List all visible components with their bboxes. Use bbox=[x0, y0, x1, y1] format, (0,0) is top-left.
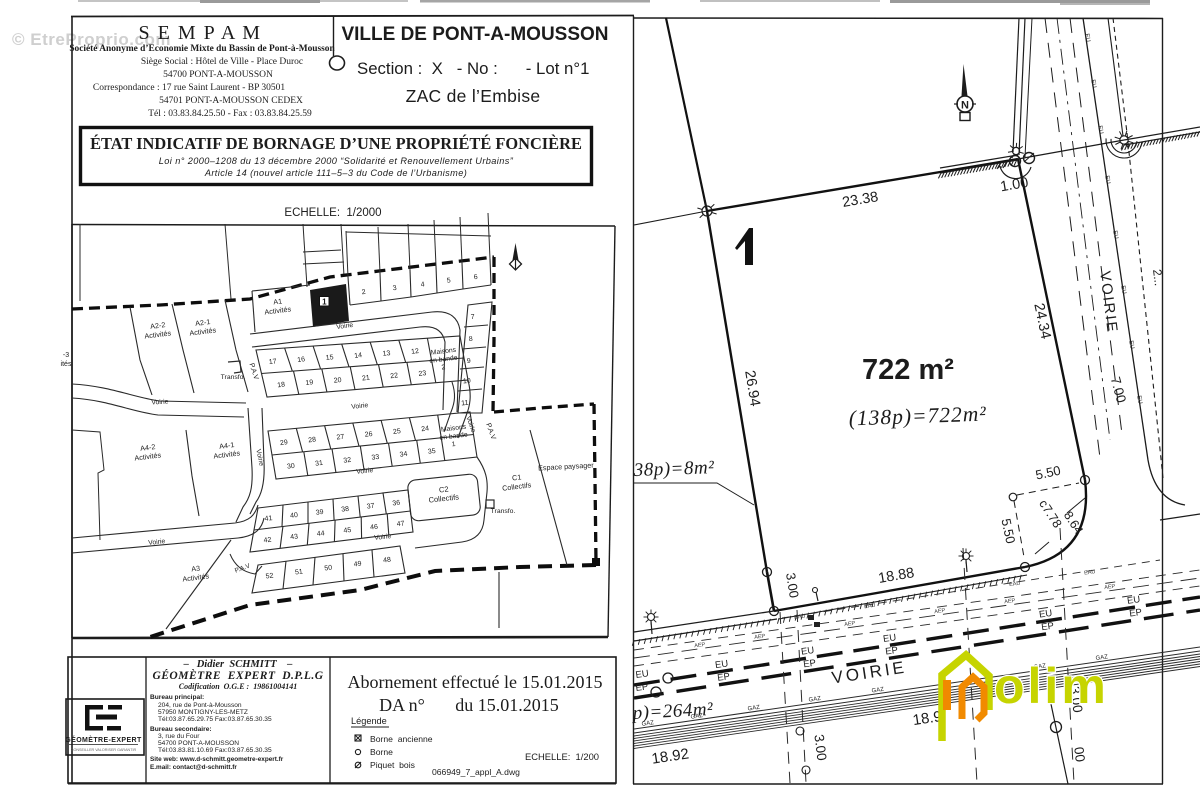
svg-text:31: 31 bbox=[315, 460, 324, 468]
svg-text:Activités: Activités bbox=[144, 328, 172, 340]
svg-text:26.94: 26.94 bbox=[741, 369, 762, 407]
svg-text:9: 9 bbox=[467, 358, 472, 365]
svg-text:EU: EU bbox=[1135, 395, 1142, 404]
svg-text:du 15.01.2015: du 15.01.2015 bbox=[455, 695, 559, 715]
svg-text:EAU: EAU bbox=[1009, 581, 1021, 589]
svg-text:VOIRIE: VOIRIE bbox=[830, 658, 908, 688]
svg-text:EU: EU bbox=[800, 645, 815, 658]
svg-text:46: 46 bbox=[370, 524, 379, 532]
svg-text:ZAC de l’Embise: ZAC de l’Embise bbox=[406, 86, 541, 106]
svg-text:44: 44 bbox=[316, 530, 325, 538]
svg-text:EU: EU bbox=[1111, 230, 1118, 239]
svg-text:Activités: Activités bbox=[264, 304, 292, 316]
svg-text:Activités: Activités bbox=[213, 448, 241, 460]
svg-text:Tél:03.83.81.10.69 Fax:03.87.6: Tél:03.83.81.10.69 Fax:03.87.65.30.35 bbox=[158, 747, 272, 754]
svg-text:18.92: 18.92 bbox=[651, 745, 691, 767]
svg-text:22: 22 bbox=[390, 372, 399, 380]
svg-text:EU: EU bbox=[1089, 79, 1096, 88]
svg-text:32: 32 bbox=[343, 457, 352, 465]
svg-text:ECHELLE: 1/200: ECHELLE: 1/200 bbox=[525, 751, 599, 762]
svg-text:51: 51 bbox=[295, 569, 304, 577]
svg-text:50: 50 bbox=[324, 565, 333, 573]
svg-text:-3: -3 bbox=[63, 352, 69, 359]
svg-text:Espace paysager: Espace paysager bbox=[538, 461, 595, 473]
svg-text:47: 47 bbox=[396, 520, 405, 528]
svg-text:N: N bbox=[961, 100, 969, 112]
svg-text:Activités: Activités bbox=[134, 450, 162, 462]
svg-text:Activités: Activités bbox=[182, 571, 210, 583]
svg-text:28: 28 bbox=[308, 436, 317, 444]
svg-text:Loi n° 2000–1208 du 13 décembr: Loi n° 2000–1208 du 13 décembre 2000 “So… bbox=[159, 156, 514, 166]
svg-text:ÉTAT INDICATIF DE BORNAGE D’UN: ÉTAT INDICATIF DE BORNAGE D’UNE PROPRIÉT… bbox=[90, 134, 582, 153]
svg-text:8.64: 8.64 bbox=[1061, 509, 1086, 537]
svg-text:EAU: EAU bbox=[864, 603, 876, 611]
svg-text:23.38: 23.38 bbox=[841, 189, 879, 211]
svg-text:57950 MONTIGNY-LES-METZ: 57950 MONTIGNY-LES-METZ bbox=[158, 709, 248, 716]
svg-text:7: 7 bbox=[471, 314, 476, 321]
svg-text:EU: EU bbox=[1127, 340, 1134, 349]
svg-text:8: 8 bbox=[469, 336, 474, 343]
svg-text:204, rue de Pont-à-Mousson: 204, rue de Pont-à-Mousson bbox=[158, 702, 242, 709]
svg-text:EU: EU bbox=[1126, 594, 1141, 607]
svg-text:10: 10 bbox=[463, 378, 471, 386]
svg-text:21: 21 bbox=[362, 375, 371, 383]
svg-text:066949_7_appl_A.dwg: 066949_7_appl_A.dwg bbox=[432, 767, 520, 777]
svg-text:43: 43 bbox=[290, 533, 299, 541]
svg-text:EAU: EAU bbox=[1084, 569, 1096, 577]
svg-text:(138p)=722m²: (138p)=722m² bbox=[848, 402, 987, 431]
svg-text:722 m²: 722 m² bbox=[862, 354, 954, 386]
svg-text:P.A.V: P.A.V bbox=[247, 362, 259, 381]
svg-text:7.00: 7.00 bbox=[1108, 375, 1129, 404]
svg-text:c7.78: c7.78 bbox=[1036, 497, 1064, 530]
svg-text:Borne: Borne bbox=[370, 747, 393, 757]
svg-text:Activités: Activités bbox=[189, 325, 217, 337]
svg-text:2: 2 bbox=[441, 364, 446, 371]
svg-text:VILLE DE PONT-A-MOUSSON: VILLE DE PONT-A-MOUSSON bbox=[341, 24, 608, 45]
svg-text:DA n°: DA n° bbox=[379, 695, 425, 715]
svg-text:Transfo.: Transfo. bbox=[221, 374, 246, 381]
svg-text:3, rue du Four: 3, rue du Four bbox=[158, 733, 200, 740]
svg-text:5.50: 5.50 bbox=[998, 517, 1018, 545]
svg-text:00: 00 bbox=[1071, 746, 1088, 763]
svg-text:– Didier SCHMITT –: – Didier SCHMITT – bbox=[183, 659, 294, 670]
svg-text:EU: EU bbox=[714, 658, 729, 671]
svg-text:Légende: Légende bbox=[351, 716, 387, 726]
svg-text:25: 25 bbox=[393, 428, 402, 436]
svg-text:6: 6 bbox=[473, 274, 478, 281]
svg-text:13: 13 bbox=[382, 350, 391, 358]
svg-text:14: 14 bbox=[354, 352, 363, 360]
svg-text:18: 18 bbox=[277, 381, 286, 389]
svg-text:Voirie: Voirie bbox=[336, 322, 354, 331]
svg-text:Voirie: Voirie bbox=[148, 538, 166, 547]
svg-text:Voirie: Voirie bbox=[356, 467, 374, 476]
svg-text:EU: EU bbox=[1038, 608, 1053, 621]
svg-text:EP: EP bbox=[803, 658, 817, 671]
svg-text:Article 14 (nouvel article 111: Article 14 (nouvel article 111–5–3 du Co… bbox=[204, 168, 467, 178]
svg-text:CONSEILLER VALORISER GARANTIR: CONSEILLER VALORISER GARANTIR bbox=[71, 748, 137, 752]
svg-text:Piquet bois: Piquet bois bbox=[370, 760, 415, 770]
svg-text:54700 PONT-A-MOUSSON: 54700 PONT-A-MOUSSON bbox=[163, 70, 273, 80]
svg-text:Tél:03.87.65.29.75 Fax:03.87.6: Tél:03.87.65.29.75 Fax:03.87.65.30.35 bbox=[158, 716, 272, 723]
svg-text:16: 16 bbox=[297, 356, 306, 364]
svg-text:45: 45 bbox=[343, 527, 352, 535]
svg-text:GÉOMÈTRE-EXPERT: GÉOMÈTRE-EXPERT bbox=[65, 735, 142, 744]
svg-text:Abornement effectué le 15.01.2: Abornement effectué le 15.01.2015 bbox=[347, 672, 602, 692]
svg-text:3: 3 bbox=[392, 285, 397, 292]
svg-text:5: 5 bbox=[446, 277, 451, 284]
svg-text:2...: 2... bbox=[1150, 268, 1166, 286]
svg-text:26: 26 bbox=[364, 431, 373, 439]
svg-text:38: 38 bbox=[341, 506, 350, 514]
svg-text:EU: EU bbox=[1096, 125, 1103, 134]
svg-text:EU: EU bbox=[882, 632, 897, 645]
svg-text:17: 17 bbox=[268, 358, 277, 366]
svg-text:Bureau principal:: Bureau principal: bbox=[150, 694, 204, 701]
svg-text:48: 48 bbox=[383, 557, 392, 565]
svg-text:39: 39 bbox=[315, 509, 324, 517]
svg-text:Codification O.G.E : 1986100: Codification O.G.E : 19861004141 bbox=[179, 682, 297, 691]
svg-text:11: 11 bbox=[461, 400, 469, 408]
svg-text:5.50: 5.50 bbox=[1034, 463, 1062, 483]
svg-text:VOIRIE: VOIRIE bbox=[1096, 270, 1121, 334]
svg-text:54700 PONT-A-MOUSSON: 54700 PONT-A-MOUSSON bbox=[158, 740, 239, 747]
svg-text:AEP: AEP bbox=[694, 642, 706, 650]
svg-text:34: 34 bbox=[399, 451, 408, 459]
svg-text:EU: EU bbox=[635, 668, 650, 681]
svg-text:P.A.V: P.A.V bbox=[484, 422, 497, 441]
svg-text:29: 29 bbox=[280, 439, 289, 447]
svg-text:ECHELLE: 1/2000: ECHELLE: 1/2000 bbox=[284, 207, 381, 219]
svg-text:27: 27 bbox=[336, 434, 345, 442]
svg-text:41: 41 bbox=[264, 515, 273, 523]
svg-text:2: 2 bbox=[361, 289, 366, 296]
svg-text:3.00: 3.00 bbox=[811, 733, 829, 761]
svg-text:24: 24 bbox=[421, 425, 430, 433]
svg-text:Voirie: Voirie bbox=[151, 399, 169, 407]
svg-text:EP: EP bbox=[1041, 621, 1055, 634]
svg-text:Collectifs: Collectifs bbox=[428, 492, 459, 504]
svg-text:EU: EU bbox=[1119, 285, 1126, 294]
svg-text:Collectifs: Collectifs bbox=[502, 480, 532, 493]
svg-text:54701 PONT-A-MOUSSON CEDEX: 54701 PONT-A-MOUSSON CEDEX bbox=[159, 96, 303, 106]
svg-text:Section : X - No : - L: Section : X - No : - Lot n°1 bbox=[357, 59, 589, 78]
svg-text:35: 35 bbox=[428, 448, 437, 456]
svg-text:52: 52 bbox=[265, 573, 274, 581]
svg-text:EU: EU bbox=[1103, 175, 1110, 184]
svg-text:4: 4 bbox=[420, 281, 425, 288]
svg-text:49: 49 bbox=[353, 561, 362, 569]
svg-text:Site web: www.d-schmitt.geomet: Site web: www.d-schmitt.geometre-expert.… bbox=[150, 756, 284, 763]
svg-text:E.mail: contact@d-schmitt.fr: E.mail: contact@d-schmitt.fr bbox=[150, 764, 237, 771]
svg-text:30: 30 bbox=[287, 463, 296, 471]
svg-text:3.00: 3.00 bbox=[783, 572, 802, 599]
svg-text:12: 12 bbox=[411, 348, 420, 356]
svg-text:33: 33 bbox=[371, 454, 380, 462]
svg-text:Bureau secondaire:: Bureau secondaire: bbox=[150, 726, 212, 733]
svg-text:EP: EP bbox=[635, 681, 649, 694]
svg-text:40: 40 bbox=[290, 512, 299, 520]
svg-text:Voirie: Voirie bbox=[374, 533, 392, 542]
svg-text:Tél : 03.83.84.25.50 - Fax : 0: Tél : 03.83.84.25.50 - Fax : 03.83.84.25… bbox=[148, 109, 312, 119]
svg-text:38p)=8m²: 38p)=8m² bbox=[632, 457, 714, 481]
svg-text:EAU: EAU bbox=[794, 613, 806, 621]
svg-text:36: 36 bbox=[392, 500, 401, 508]
svg-text:Correspondance : 17 rue Saint: Correspondance : 17 rue Saint Laurent - … bbox=[93, 83, 285, 93]
svg-text:37: 37 bbox=[366, 503, 375, 511]
svg-text:GÉOMÈTRE EXPERT D.P.L.G: GÉOMÈTRE EXPERT D.P.L.G bbox=[152, 668, 323, 682]
svg-text:EP: EP bbox=[885, 645, 899, 658]
svg-text:Transfo.: Transfo. bbox=[491, 508, 516, 515]
svg-text:1: 1 bbox=[451, 441, 456, 448]
svg-text:EU: EU bbox=[1083, 33, 1090, 42]
svg-text:20: 20 bbox=[333, 377, 342, 385]
svg-text:S E M P A M: S E M P A M bbox=[138, 22, 261, 44]
svg-text:42: 42 bbox=[263, 537, 272, 545]
svg-text:Borne ancienne: Borne ancienne bbox=[370, 734, 433, 744]
svg-text:Siège Social : Hôtel de Ville: Siège Social : Hôtel de Ville - Place Du… bbox=[141, 57, 303, 67]
svg-text:15: 15 bbox=[325, 354, 334, 362]
svg-text:1: 1 bbox=[322, 297, 327, 306]
svg-text:olim: olim bbox=[994, 658, 1109, 714]
svg-text:Société Anonyme d’Economie Mix: Société Anonyme d’Economie Mixte du Bass… bbox=[69, 44, 335, 54]
svg-text:19: 19 bbox=[305, 379, 314, 387]
svg-text:18.88: 18.88 bbox=[877, 565, 915, 587]
svg-text:ités: ités bbox=[61, 361, 72, 368]
svg-text:Voirie: Voirie bbox=[351, 402, 369, 411]
svg-text:23: 23 bbox=[418, 370, 427, 378]
svg-text:p)=264m²: p)=264m² bbox=[630, 699, 714, 724]
svg-text:EP: EP bbox=[717, 671, 731, 684]
svg-text:EP: EP bbox=[1129, 607, 1143, 620]
